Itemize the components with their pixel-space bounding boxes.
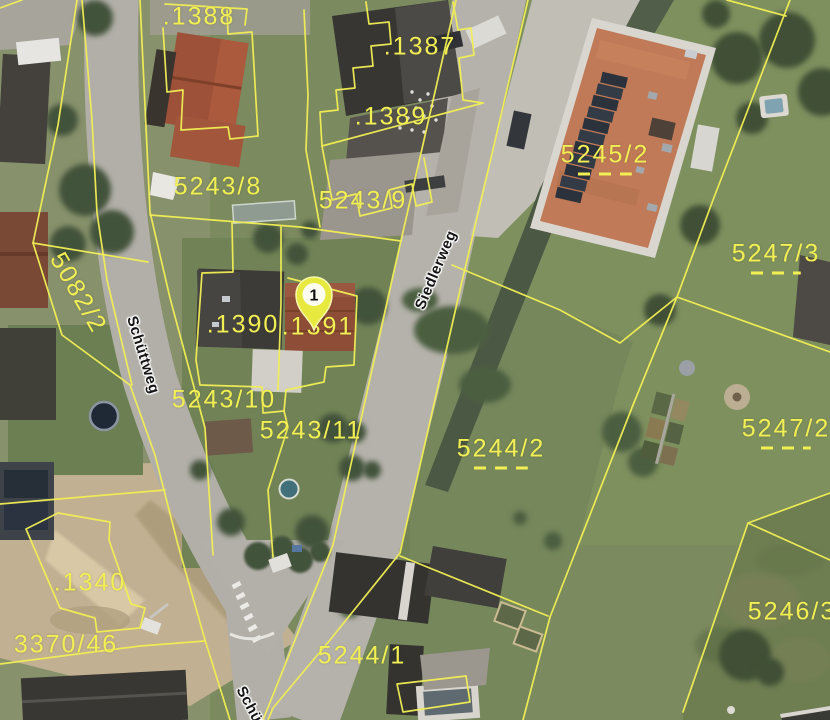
map-viewport[interactable]: .1388 .1387 .1389 5243/8 5243/9 5245/2 5… bbox=[0, 0, 830, 720]
marker-number: 1 bbox=[310, 288, 319, 305]
marker-pin-icon: 1 bbox=[292, 275, 336, 332]
aerial-photo-layer bbox=[0, 0, 830, 720]
marker-pin[interactable]: 1 bbox=[292, 275, 336, 332]
